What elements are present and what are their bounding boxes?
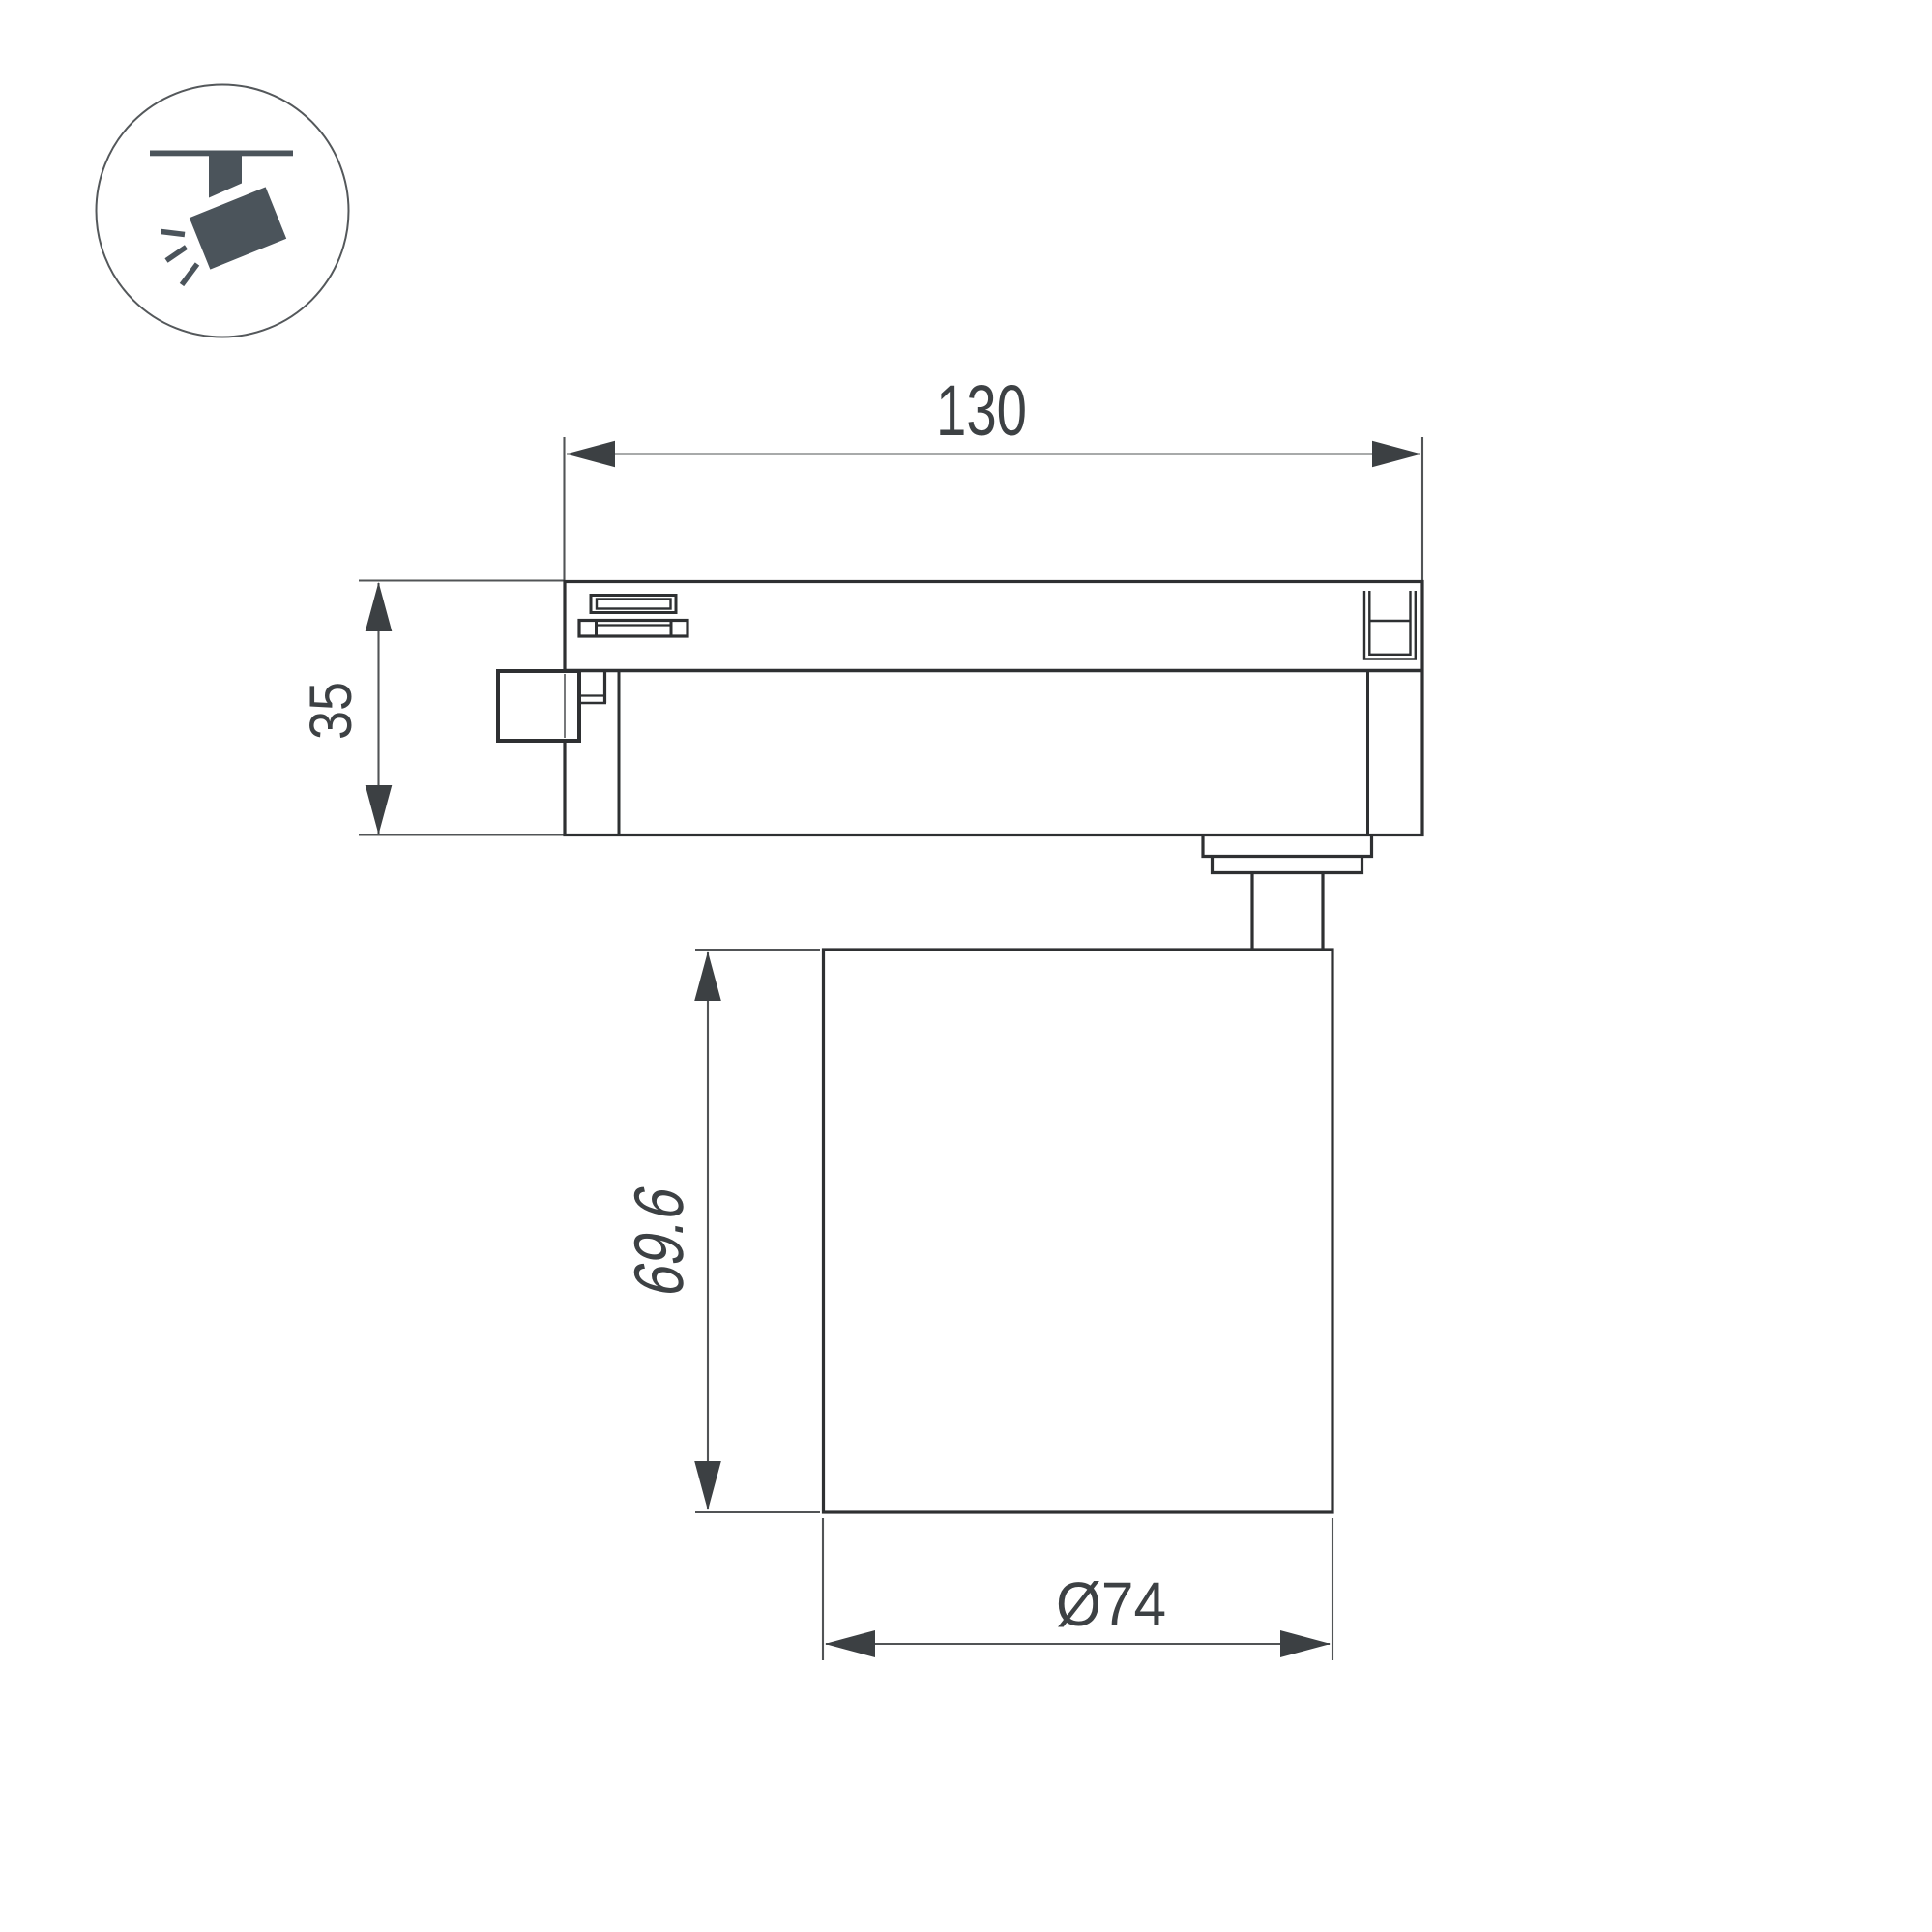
svg-text:130: 130: [936, 370, 1027, 451]
svg-text:69.6: 69.6: [621, 1179, 698, 1303]
svg-text:Ø74: Ø74: [1056, 1569, 1166, 1639]
svg-text:35: 35: [298, 682, 364, 740]
